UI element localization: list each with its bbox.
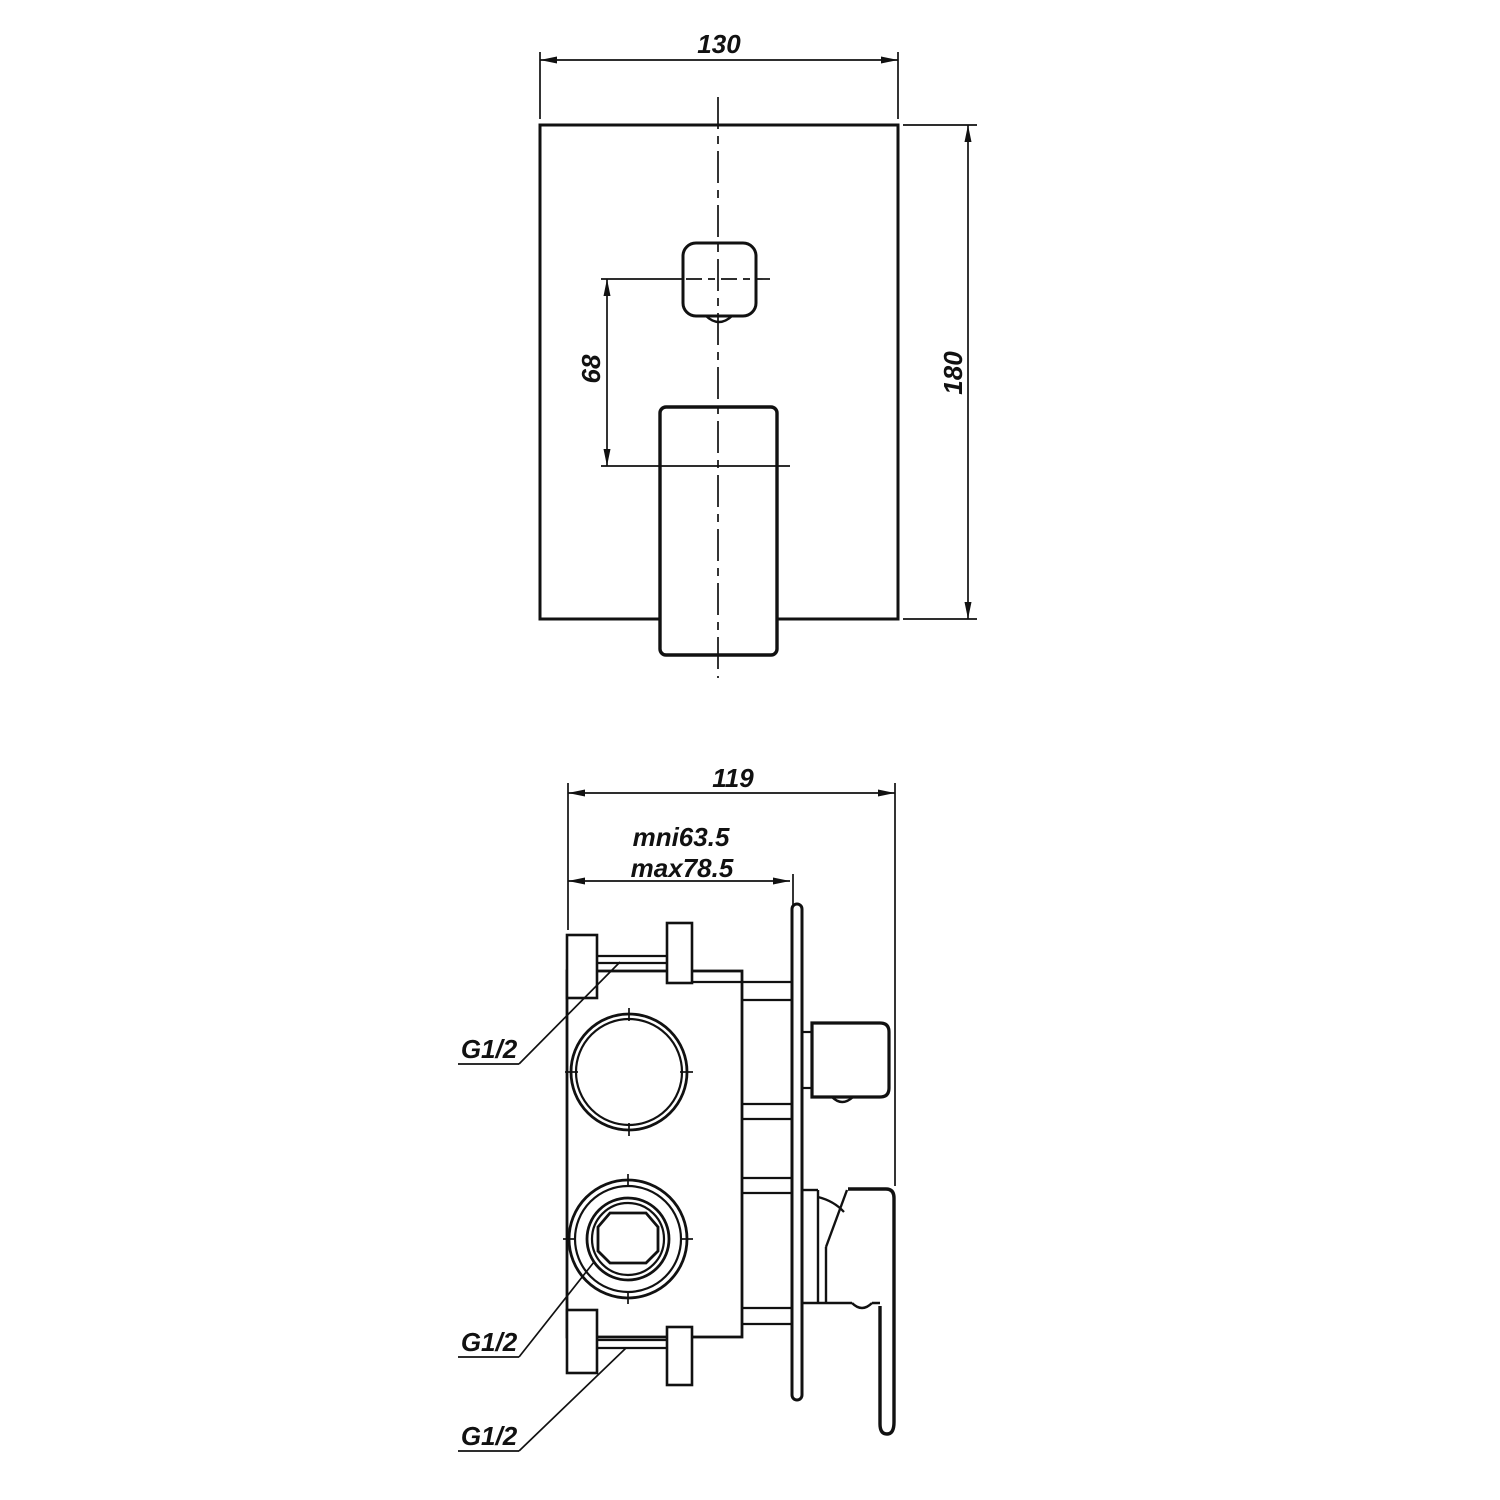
wall-plate-side [792, 904, 802, 1400]
port-label-bottom: G1/2 [458, 1348, 626, 1451]
port-label-text: G1/2 [461, 1421, 518, 1451]
lever-arm-outline [848, 1189, 894, 1434]
hex-socket [598, 1213, 658, 1263]
dim-offset-label: 68 [576, 354, 606, 383]
top-mounting-tab [667, 923, 692, 983]
dimension-mounting-depth: mni63.5 max78.5 [568, 822, 793, 906]
shower-valve-technical-drawing: 130 180 68 [0, 0, 1500, 1500]
lever-front-edge [826, 1190, 847, 1247]
port-outer-ring [571, 1014, 687, 1130]
front-view-drawing: 130 180 68 [540, 29, 977, 678]
arrowhead [540, 57, 557, 64]
arrowhead [773, 878, 790, 885]
technical-drawing-page: 130 180 68 [0, 0, 1500, 1500]
bottom-port-fitting [567, 1310, 597, 1373]
arrowhead [568, 790, 585, 797]
arrowhead [965, 602, 972, 619]
dim-depth-label: 119 [712, 763, 754, 793]
dim-min-depth-label: mni63.5 [633, 822, 730, 852]
dim-width-label: 130 [697, 29, 741, 59]
diverter-button-side [812, 1023, 889, 1097]
dim-height-label: 180 [938, 351, 968, 395]
arrowhead [878, 790, 895, 797]
arrowhead [965, 125, 972, 142]
port-label-text: G1/2 [461, 1327, 518, 1357]
arrowhead [568, 878, 585, 885]
hub-bottom-arc [852, 1303, 872, 1308]
lever-handle-side [802, 1189, 894, 1434]
arrowhead [881, 57, 898, 64]
side-view-drawing: 119 mni63.5 max78.5 G1/2 G1/2 G1/2 [458, 763, 895, 1451]
dim-max-depth-label: max78.5 [631, 853, 734, 883]
bottom-mounting-tab [667, 1327, 692, 1385]
dimension-height-180: 180 [903, 125, 977, 619]
port-label-text: G1/2 [461, 1034, 518, 1064]
top-port-fitting [567, 935, 597, 998]
dimension-width-130: 130 [540, 29, 898, 119]
